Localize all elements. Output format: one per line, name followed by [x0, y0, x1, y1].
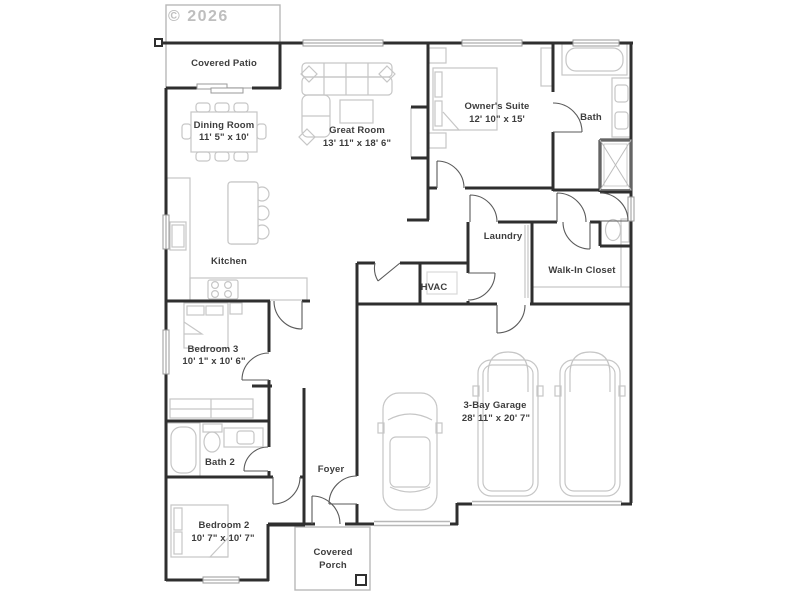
label-bath2: Bath 2 — [205, 457, 235, 468]
door-bedroom3 — [242, 353, 269, 380]
label-garage: 3-Bay Garage — [463, 400, 526, 411]
door-laundry-hall — [470, 195, 497, 222]
door-garage-entry — [497, 305, 525, 333]
window-great-room — [303, 40, 383, 46]
suite-dresser — [541, 48, 552, 86]
bath2-vanity — [224, 428, 263, 447]
garage-door-bays23 — [472, 502, 622, 506]
floorplan-canvas: © 2026 Covered Patio Dining Room 11' 5" … — [0, 0, 800, 600]
label-laundry: Laundry — [484, 231, 523, 242]
label-great-room: Great Room — [329, 125, 385, 136]
window-kitchen-sink — [163, 215, 169, 249]
door-layer — [242, 103, 628, 524]
cooktop — [208, 280, 238, 299]
window-bedroom3 — [163, 330, 169, 374]
door-bath2 — [244, 447, 268, 471]
label-covered-porch-2: Porch — [319, 560, 347, 571]
label-bedroom3-dims: 10' 1" x 10' 6" — [182, 356, 245, 367]
bedroom2-bed — [171, 505, 228, 557]
truck-bay2 — [473, 352, 543, 496]
window-bedroom2 — [203, 577, 239, 583]
door-suite-bath — [553, 103, 582, 132]
door-hvac-laundry — [468, 273, 495, 300]
door-front — [312, 496, 340, 524]
laundry-bifold — [525, 225, 528, 298]
bath-tub — [562, 44, 627, 75]
window-bath-hall — [628, 197, 634, 221]
door-foyer-garage — [329, 476, 357, 504]
label-dining-room-dims: 11' 5" x 10' — [199, 132, 249, 143]
label-hvac: HVAC — [421, 282, 448, 293]
coffee-table — [340, 100, 373, 123]
bedroom3-bed — [184, 303, 242, 348]
patio-post — [155, 39, 162, 46]
window-owners-suite — [462, 40, 522, 46]
car — [378, 393, 442, 510]
porch-post — [356, 575, 366, 585]
door-water-closet — [600, 193, 628, 221]
label-bedroom3: Bedroom 3 — [188, 344, 239, 355]
label-foyer: Foyer — [318, 464, 345, 475]
label-walk-in-closet: Walk-In Closet — [548, 265, 616, 276]
shower — [600, 140, 631, 190]
label-great-room-dims: 13' 11" x 18' 6" — [323, 138, 391, 149]
patio-slider-door — [197, 84, 243, 93]
door-closet-a — [557, 193, 586, 222]
label-kitchen: Kitchen — [211, 256, 247, 267]
garage-door-bay1 — [374, 522, 450, 526]
bedroom3-closet — [170, 399, 253, 418]
fireplace-media-niche — [411, 108, 428, 157]
bath-vanity — [612, 78, 631, 137]
label-bath: Bath — [580, 112, 602, 123]
label-covered-patio: Covered Patio — [191, 58, 257, 69]
label-bedroom2: Bedroom 2 — [199, 520, 250, 531]
label-owners-suite: Owner's Suite — [465, 101, 530, 112]
label-owners-suite-dims: 12' 10" x 15' — [469, 114, 525, 125]
truck-bay3 — [555, 352, 625, 496]
label-dining-room: Dining Room — [194, 120, 255, 131]
wc-toilet — [606, 219, 630, 242]
label-layer: Covered Patio Dining Room 11' 5" x 10' G… — [182, 58, 616, 571]
closet-shelves — [533, 225, 630, 287]
floorplan-svg: © 2026 Covered Patio Dining Room 11' 5" … — [0, 0, 800, 600]
copyright-watermark: © 2026 — [168, 8, 229, 25]
door-closet-b — [563, 222, 590, 249]
label-bedroom2-dims: 10' 7" x 10' 7" — [191, 533, 254, 544]
label-covered-porch-1: Covered — [313, 547, 352, 558]
label-garage-dims: 28' 11" x 20' 7" — [462, 413, 530, 424]
bath2-toilet — [203, 424, 222, 452]
kitchen-island — [228, 182, 269, 244]
window-bath-tub — [573, 40, 619, 46]
bath2-tub — [167, 423, 200, 477]
door-bed-hall — [274, 301, 302, 329]
door-pantry — [374, 263, 400, 281]
door-owners-suite — [437, 161, 464, 188]
door-bedroom2 — [273, 477, 300, 504]
owners-suite-bed — [429, 48, 497, 148]
